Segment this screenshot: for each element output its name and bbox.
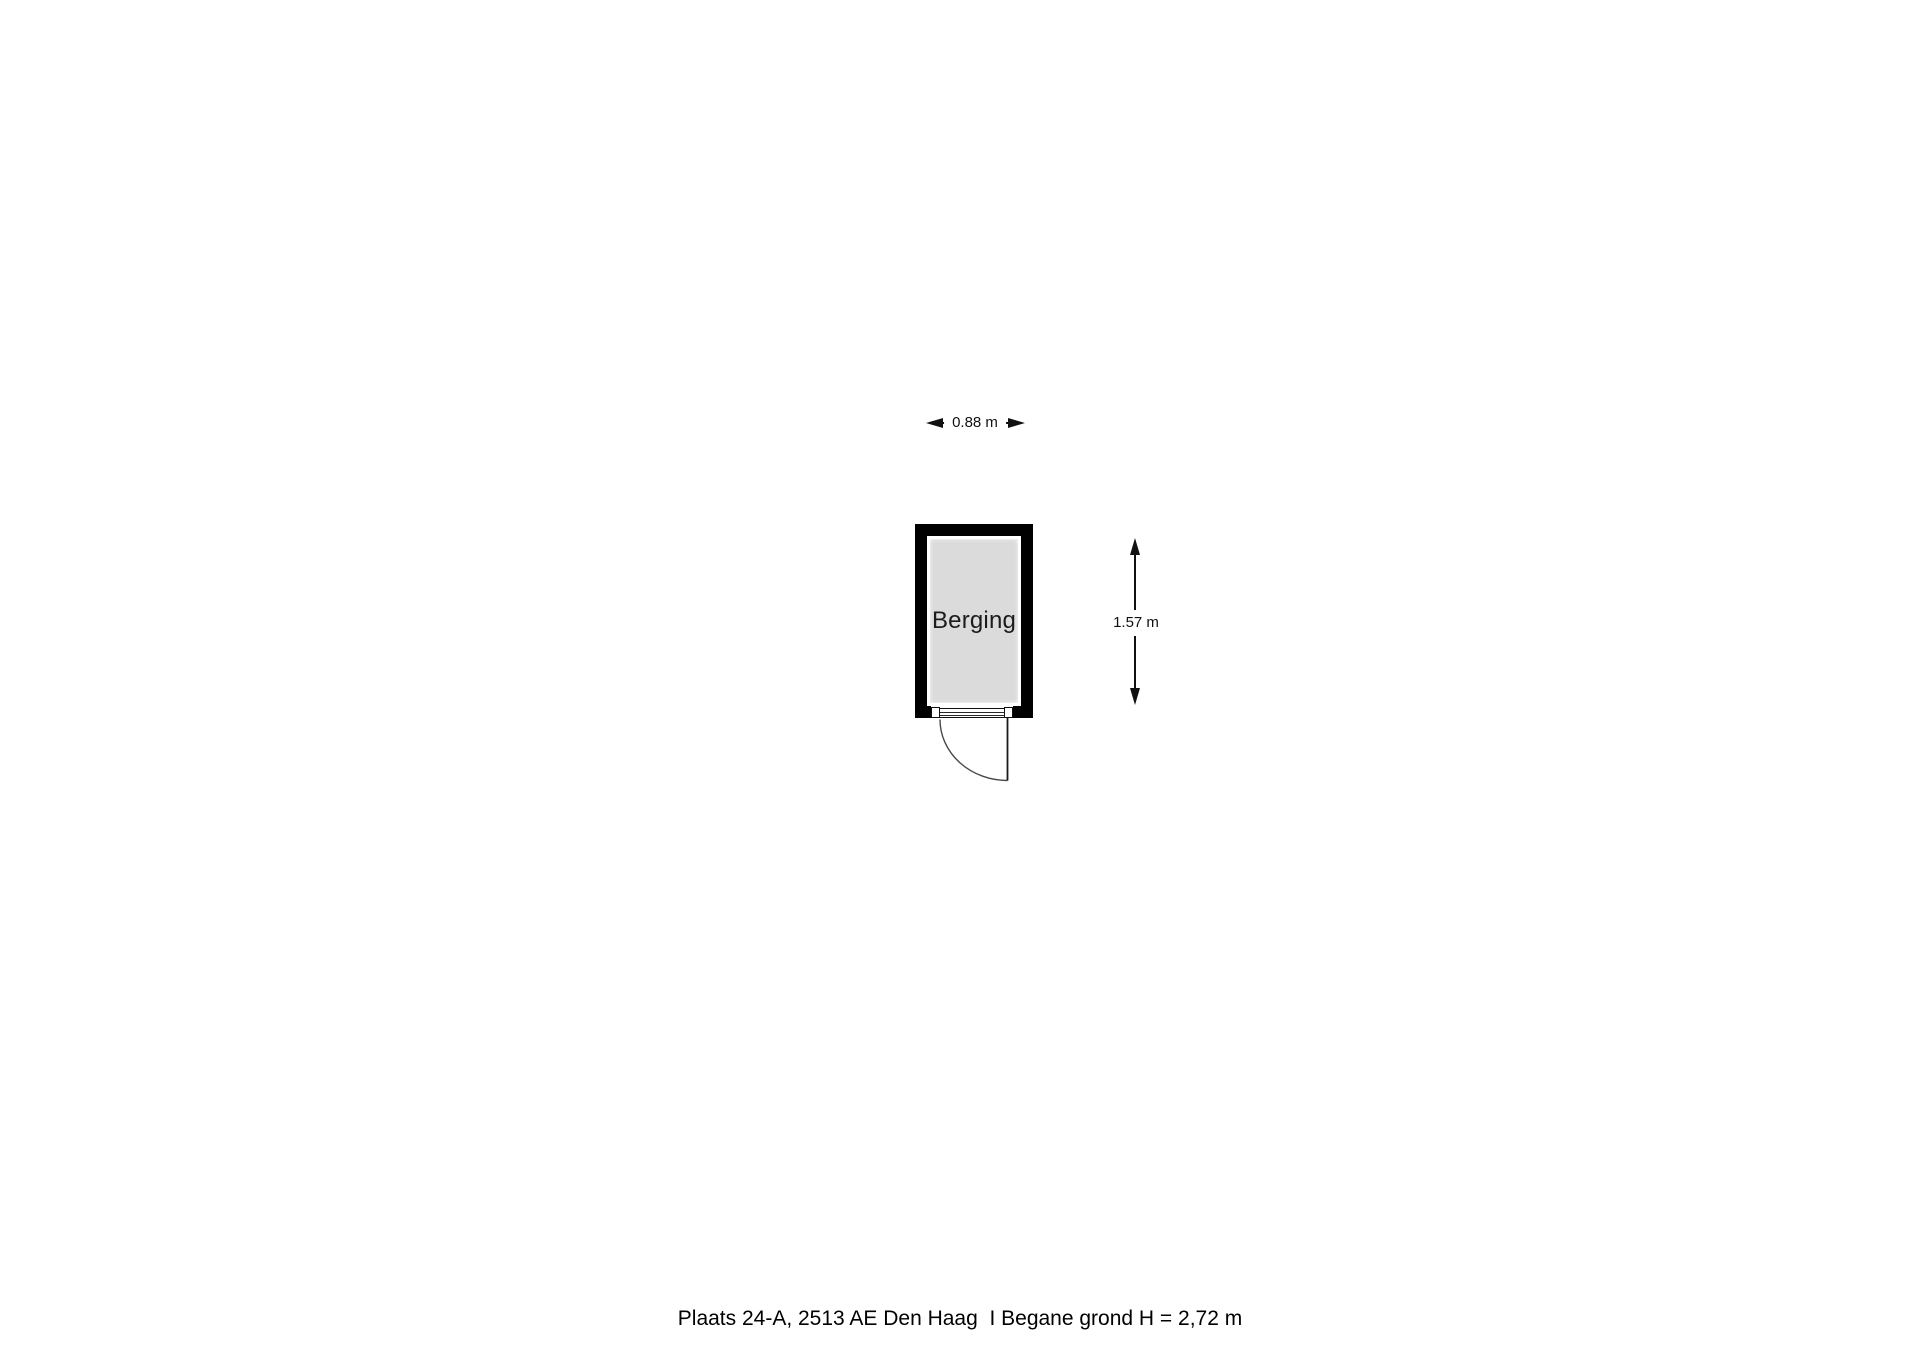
footer-caption: Plaats 24-A, 2513 AE Den Haag I Begane g… xyxy=(0,1306,1920,1332)
width-dimension-label: 0.88 m xyxy=(944,414,1006,432)
floorplan-canvas: 0.88 m Berging 1.57 m xyxy=(0,0,1920,1358)
room-label-box: Berging xyxy=(927,536,1021,706)
door-sill-line xyxy=(939,712,1005,713)
height-dimension-label: 1.57 m xyxy=(1111,610,1161,636)
room-label: Berging xyxy=(932,607,1016,635)
dimension-arrow-right-icon xyxy=(1008,418,1025,428)
door-arc xyxy=(940,720,1008,781)
door-swing-icon xyxy=(920,714,1030,792)
dimension-arrow-down-icon xyxy=(1130,688,1140,705)
